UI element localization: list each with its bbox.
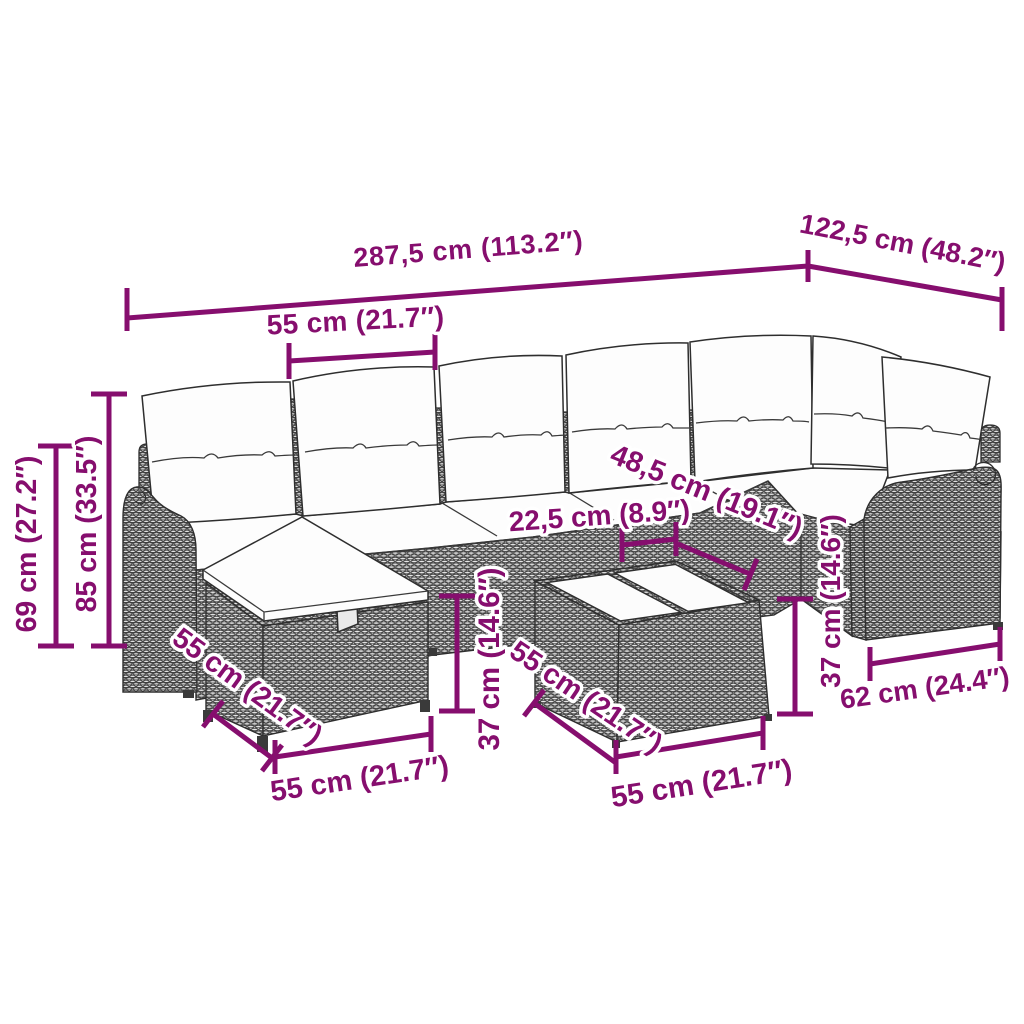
svg-text:69 cm (27.2″): 69 cm (27.2″)	[11, 456, 43, 633]
svg-text:37 cm (14.6″): 37 cm (14.6″)	[815, 514, 846, 688]
svg-text:37 cm (14.6″): 37 cm (14.6″)	[473, 567, 506, 750]
svg-text:85 cm (33.5″): 85 cm (33.5″)	[71, 436, 103, 613]
